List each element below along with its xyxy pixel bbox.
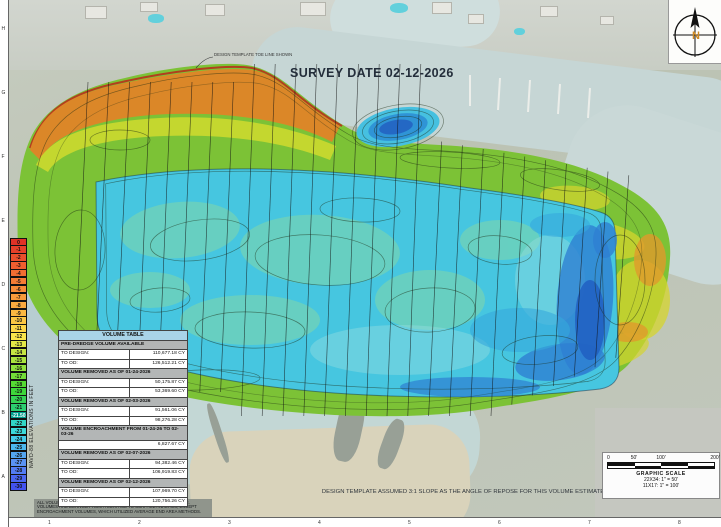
- sheet-grid-bottom: 12345678: [0, 517, 721, 527]
- grid-row-label: H: [2, 26, 6, 32]
- table-row: 6,827.67 CY: [59, 440, 188, 450]
- grid-row-label: C: [2, 346, 6, 352]
- grid-col-label: 3: [228, 520, 231, 526]
- compass-rose: N: [668, 0, 721, 64]
- slope-assumption-note: DESIGN TEMPLATE ASSUMED 3:1 SLOPE AS THE…: [298, 489, 628, 495]
- row-value: 110,677.18 CY: [129, 350, 187, 360]
- table-section-header: VOLUME REMOVED AS OF 02-07-2026: [59, 450, 188, 460]
- row-value: 107,969.70 CY: [129, 488, 187, 498]
- row-label: TO OD:: [59, 359, 130, 369]
- table-row: TO OD:106,919.83 CY: [59, 469, 188, 479]
- scale-tick-label: 200': [710, 455, 719, 461]
- grid-row-label: G: [2, 90, 6, 96]
- grid-col-label: 6: [498, 520, 501, 526]
- row-value: 98,276.28 CY: [129, 416, 187, 426]
- sheet-grid-left: HGFEDCBA: [0, 0, 9, 527]
- table-row: TO DESIGN:94,382.46 CY: [59, 459, 188, 469]
- dredge-survey-map: SURVEY DATE 02-12-2026 DESIGN TEMPLATE T…: [0, 0, 721, 527]
- grid-row-label: B: [2, 410, 5, 416]
- row-value: 91,561.06 CY: [129, 407, 187, 417]
- grid-row-label: E: [2, 218, 5, 224]
- row-label: TO DESIGN:: [59, 459, 130, 469]
- row-label: TO DESIGN:: [59, 488, 130, 498]
- survey-date-label: SURVEY DATE 02-12-2026: [290, 66, 454, 80]
- table-section-header: VOLUME REMOVED AS OF 01-24-2026: [59, 369, 188, 379]
- row-label: TO DESIGN:: [59, 378, 130, 388]
- grid-row-label: D: [2, 282, 6, 288]
- grid-col-label: 5: [408, 520, 411, 526]
- disclaimer-line: ENCROACHMENT VOLUMES, WHICH UTILIZED AVE…: [37, 510, 209, 515]
- grid-col-label: 1: [48, 520, 51, 526]
- scale-bar: [607, 462, 715, 469]
- elevation-legend: 0-1-2-3-4-5-6-7-8-9-10-11-12-13-14-15-16…: [10, 238, 27, 491]
- volume-table: VOLUME TABLE PRE-DREDGE VOLUME AVAILABLE…: [58, 330, 188, 507]
- row-value: 6,827.67 CY: [59, 440, 188, 450]
- grid-col-label: 4: [318, 520, 321, 526]
- table-row: TO OD:120,756.26 CY: [59, 497, 188, 507]
- row-value: 94,382.46 CY: [129, 459, 187, 469]
- table-row: TO OD:53,369.60 CY: [59, 388, 188, 398]
- scale-tick-label: 0: [607, 455, 610, 461]
- row-label: TO DESIGN:: [59, 350, 130, 360]
- row-label: TO OD:: [59, 388, 130, 398]
- design-template-note: DESIGN TEMPLATE TOE LINE SHOWN: [214, 52, 292, 57]
- graphic-scale: 050'100'200' GRAPHIC SCALE 22X34: 1" = 5…: [602, 452, 720, 499]
- grid-col-label: 8: [678, 520, 681, 526]
- table-section-header: VOLUME ENCROACHMENT FROM 01-24-26 TO 02-…: [59, 426, 188, 440]
- scale-tick-labels: 050'100'200': [607, 455, 715, 462]
- compass-north-label: N: [692, 30, 700, 42]
- table-row: TO DESIGN:91,561.06 CY: [59, 407, 188, 417]
- table-section-header: VOLUME REMOVED AS OF 02-03-2026: [59, 397, 188, 407]
- grid-col-label: 2: [138, 520, 141, 526]
- row-value: 50,175.87 CY: [129, 378, 187, 388]
- row-value: 53,369.60 CY: [129, 388, 187, 398]
- row-value: 106,919.83 CY: [129, 469, 187, 479]
- table-row: TO OD:98,276.28 CY: [59, 416, 188, 426]
- grid-row-label: F: [2, 154, 5, 160]
- legend-entry--30: -30: [10, 482, 27, 490]
- table-row: TO DESIGN:110,677.18 CY: [59, 350, 188, 360]
- table-row: TO DESIGN:50,175.87 CY: [59, 378, 188, 388]
- table-row: TO OD:126,512.21 CY: [59, 359, 188, 369]
- grid-col-label: 7: [588, 520, 591, 526]
- scale-tick-label: 100': [656, 455, 665, 461]
- scale-ratio-11x17: 11X17: 1" = 100': [607, 483, 715, 489]
- grid-row-label: A: [2, 474, 5, 480]
- row-label: TO OD:: [59, 497, 130, 507]
- legend-axis-label: NAVD-88 ELEVATIONS IN FEET: [29, 298, 35, 468]
- volume-table-title: VOLUME TABLE: [59, 331, 188, 341]
- table-section-header: PRE-DREDGE VOLUME AVAILABLE: [59, 340, 188, 350]
- legend-color-ramp: 0-1-2-3-4-5-6-7-8-9-10-11-12-13-14-15-16…: [10, 238, 27, 491]
- row-value: 120,756.26 CY: [129, 497, 187, 507]
- scale-tick-label: 50': [631, 455, 638, 461]
- table-section-header: VOLUME REMOVED AS OF 02-12-2026: [59, 478, 188, 488]
- row-label: TO DESIGN:: [59, 407, 130, 417]
- row-label: TO OD:: [59, 469, 130, 479]
- table-row: TO DESIGN:107,969.70 CY: [59, 488, 188, 498]
- row-label: TO OD:: [59, 416, 130, 426]
- row-value: 126,512.21 CY: [129, 359, 187, 369]
